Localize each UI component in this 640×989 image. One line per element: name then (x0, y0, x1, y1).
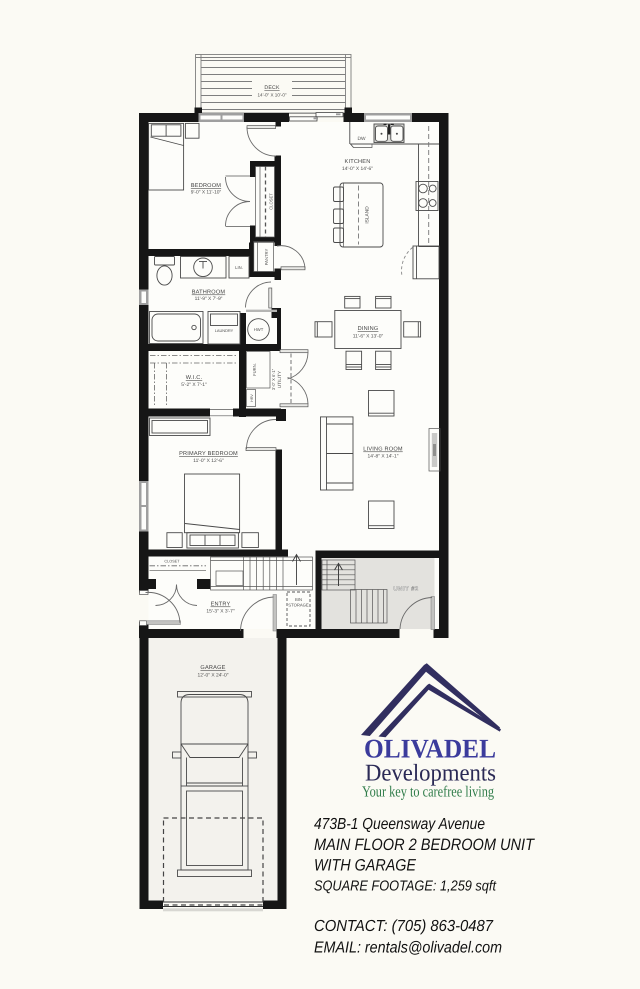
svg-text:LIN.: LIN. (235, 265, 243, 270)
svg-text:CLOSET: CLOSET (164, 560, 180, 564)
svg-text:Your key to carefree living: Your key to carefree living (362, 784, 494, 801)
svg-text:9'-0" X 11'-10": 9'-0" X 11'-10" (191, 190, 222, 196)
svg-text:ENTRY: ENTRY (211, 602, 231, 608)
svg-text:14'-8" X 14'-1": 14'-8" X 14'-1" (368, 454, 399, 460)
svg-text:MAIN FLOOR 2 BEDROOM UNIT: MAIN FLOOR 2 BEDROOM UNIT (314, 836, 536, 854)
svg-text:3'-0" X 6'-1": 3'-0" X 6'-1" (271, 368, 276, 390)
svg-text:PRIMARY BEDROOM: PRIMARY BEDROOM (179, 451, 238, 457)
svg-text:12'-0" X 24'-0": 12'-0" X 24'-0" (198, 673, 229, 679)
svg-text:11'-9" X 7'-9": 11'-9" X 7'-9" (195, 296, 223, 302)
svg-text:DINING: DINING (358, 326, 379, 332)
svg-text:FURN.: FURN. (252, 363, 257, 376)
svg-text:BIN: BIN (295, 597, 302, 602)
svg-text:SQUARE FOOTAGE: 1,259 sqft: SQUARE FOOTAGE: 1,259 sqft (314, 879, 497, 895)
svg-text:DECK: DECK (264, 85, 280, 91)
svg-text:HRV: HRV (250, 394, 254, 402)
svg-text:STORAGE: STORAGE (288, 603, 309, 608)
svg-text:WITH GARAGE: WITH GARAGE (314, 857, 417, 875)
svg-text:GARAGE: GARAGE (200, 665, 225, 671)
svg-text:LAUNDRY: LAUNDRY (215, 328, 234, 333)
svg-text:CLOSET: CLOSET (269, 193, 274, 210)
svg-text:ISLAND: ISLAND (365, 206, 371, 224)
svg-text:UNIT #2: UNIT #2 (393, 586, 418, 593)
svg-text:CONTACT: (705) 863-0487: CONTACT: (705) 863-0487 (314, 918, 494, 935)
svg-text:UTILITY: UTILITY (277, 371, 282, 388)
svg-text:473B-1 Queensway Avenue: 473B-1 Queensway Avenue (314, 816, 485, 833)
svg-text:LIVING ROOM: LIVING ROOM (363, 447, 403, 453)
svg-text:BATHROOM: BATHROOM (192, 290, 226, 296)
svg-text:11'-6" X 13'-0": 11'-6" X 13'-0" (353, 334, 384, 340)
svg-text:BEDROOM: BEDROOM (191, 183, 221, 189)
svg-text:PANTRY: PANTRY (264, 248, 269, 265)
svg-text:15'-3" X 3'-7": 15'-3" X 3'-7" (206, 609, 234, 615)
svg-text:14'-0" X 14'-6": 14'-0" X 14'-6" (342, 166, 373, 172)
svg-text:W.I.C.: W.I.C. (186, 375, 203, 381)
svg-text:11'-0" X 12'-6": 11'-0" X 12'-6" (193, 458, 224, 464)
svg-text:14'-0" X 10'-0": 14'-0" X 10'-0" (257, 93, 286, 98)
svg-text:DW: DW (358, 136, 366, 142)
svg-text:5'-2" X 7'-1": 5'-2" X 7'-1" (181, 382, 207, 388)
svg-text:KITCHEN: KITCHEN (345, 159, 371, 165)
svg-text:HWT: HWT (254, 327, 264, 332)
svg-text:OLIVADEL: OLIVADEL (364, 734, 496, 764)
svg-text:EMAIL: rentals@olivadel.com: EMAIL: rentals@olivadel.com (314, 940, 502, 957)
